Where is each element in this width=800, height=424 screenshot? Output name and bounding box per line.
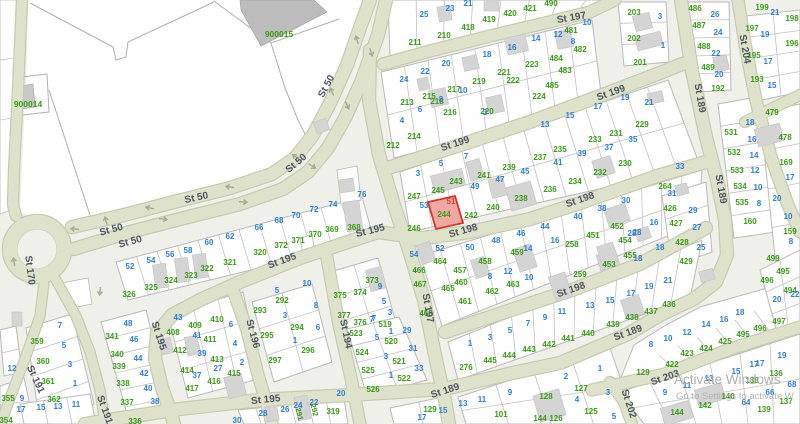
svg-text:18: 18 [746,118,755,127]
svg-text:7: 7 [526,319,531,328]
svg-text:319: 319 [326,407,340,416]
svg-text:144: 144 [670,408,684,417]
svg-text:15: 15 [37,403,46,412]
svg-text:371: 371 [291,236,305,245]
svg-text:15: 15 [566,111,575,120]
svg-text:223: 223 [525,60,539,69]
svg-text:5: 5 [375,333,380,342]
svg-text:375: 375 [333,291,347,300]
svg-text:1: 1 [468,339,473,348]
svg-text:68: 68 [275,216,284,225]
svg-text:22: 22 [712,49,721,58]
svg-text:6: 6 [229,320,234,329]
svg-text:370: 370 [308,230,322,239]
svg-text:44: 44 [134,354,143,363]
svg-text:40: 40 [144,384,153,393]
svg-text:26: 26 [281,405,290,414]
svg-text:497: 497 [772,317,786,326]
svg-text:337: 337 [120,398,134,407]
svg-text:8: 8 [439,95,444,104]
svg-text:246: 246 [407,224,421,233]
svg-text:6: 6 [418,105,423,114]
svg-text:485: 485 [545,81,559,90]
svg-text:17: 17 [418,413,427,422]
svg-text:487: 487 [692,21,706,30]
svg-text:60: 60 [205,238,214,247]
svg-text:466: 466 [412,266,426,275]
svg-text:465: 465 [441,284,455,293]
svg-text:341: 341 [105,332,119,341]
svg-text:10: 10 [664,334,673,343]
svg-text:8: 8 [571,37,576,46]
svg-text:11: 11 [478,395,487,404]
svg-text:12: 12 [554,30,563,39]
svg-text:25: 25 [697,243,706,252]
svg-text:41: 41 [193,331,202,340]
svg-text:13: 13 [459,399,468,408]
svg-text:29: 29 [689,206,698,215]
svg-text:201: 201 [633,58,647,67]
svg-text:376: 376 [353,318,367,327]
svg-text:452: 452 [610,222,624,231]
svg-text:125: 125 [584,407,598,416]
svg-text:3: 3 [483,108,488,117]
svg-text:3: 3 [658,12,663,21]
svg-text:212: 212 [386,141,400,150]
svg-text:51: 51 [447,197,456,206]
svg-text:6: 6 [316,323,321,332]
svg-text:411: 411 [204,335,217,344]
svg-text:9: 9 [663,388,668,397]
svg-text:18: 18 [656,243,665,252]
svg-text:422: 422 [665,360,679,369]
svg-text:436: 436 [662,300,676,309]
svg-text:14: 14 [532,34,541,43]
svg-text:296: 296 [301,346,315,355]
svg-text:126: 126 [549,414,563,423]
svg-text:336: 336 [128,417,142,424]
svg-text:326: 326 [122,290,136,299]
svg-text:16: 16 [508,43,517,52]
svg-text:1: 1 [293,336,298,345]
svg-text:10: 10 [754,183,763,192]
svg-text:216: 216 [443,108,457,117]
svg-text:412: 412 [173,346,187,355]
svg-text:28: 28 [628,229,637,238]
svg-text:30: 30 [622,196,631,205]
svg-text:439: 439 [606,320,620,329]
svg-text:440: 440 [581,329,595,338]
svg-text:534: 534 [733,182,747,191]
svg-text:37: 37 [193,371,202,380]
svg-text:129: 129 [636,368,650,377]
svg-text:359: 359 [30,337,44,346]
svg-text:424: 424 [699,344,713,353]
svg-text:7: 7 [464,152,469,161]
svg-text:461: 461 [458,297,472,306]
svg-text:490: 490 [544,0,558,8]
svg-text:49: 49 [471,182,480,191]
svg-text:16: 16 [551,236,560,245]
svg-text:33: 33 [415,364,424,373]
svg-text:360: 360 [36,357,50,366]
svg-text:259: 259 [573,270,587,279]
svg-text:8: 8 [488,272,493,281]
svg-text:198: 198 [785,14,799,23]
svg-text:70: 70 [292,211,301,220]
svg-text:14: 14 [702,320,711,329]
svg-text:355: 355 [1,394,15,403]
svg-text:410: 410 [210,315,224,324]
svg-text:441: 441 [561,334,575,343]
svg-text:30: 30 [233,416,242,424]
svg-text:532: 532 [727,148,741,157]
svg-text:14: 14 [750,151,759,160]
svg-text:5: 5 [62,341,67,350]
svg-text:11: 11 [558,307,567,316]
svg-text:243: 243 [449,177,463,186]
svg-text:4: 4 [575,395,580,404]
svg-text:8: 8 [757,199,762,208]
svg-text:10: 10 [784,212,793,221]
svg-text:482: 482 [573,45,587,54]
svg-text:20: 20 [442,59,451,68]
svg-text:5: 5 [612,412,617,421]
svg-text:294: 294 [290,323,304,332]
svg-text:17: 17 [786,173,795,182]
svg-text:31: 31 [668,189,677,198]
svg-text:45: 45 [521,167,530,176]
svg-text:489: 489 [701,63,715,72]
svg-text:324: 324 [164,276,178,285]
svg-text:520: 520 [384,337,398,346]
svg-text:20: 20 [337,389,346,398]
svg-text:338: 338 [116,379,130,388]
svg-text:499: 499 [766,254,780,263]
svg-text:196: 196 [785,39,799,48]
svg-text:62: 62 [226,232,235,241]
svg-text:18: 18 [483,50,492,59]
svg-text:524: 524 [355,348,369,357]
svg-text:47: 47 [496,175,505,184]
svg-text:27: 27 [214,364,223,373]
svg-text:17: 17 [764,57,773,66]
svg-text:229: 229 [635,120,649,129]
svg-text:42: 42 [140,369,149,378]
svg-text:20: 20 [773,295,782,304]
svg-text:444: 444 [502,351,516,360]
svg-text:230: 230 [618,159,632,168]
svg-text:21: 21 [464,0,473,8]
svg-text:496: 496 [753,324,767,333]
svg-text:425: 425 [718,337,732,346]
svg-text:56: 56 [166,250,175,259]
svg-text:535: 535 [735,198,749,207]
svg-text:463: 463 [506,280,520,289]
svg-text:438: 438 [625,313,639,322]
svg-text:443: 443 [522,345,536,354]
svg-text:531: 531 [724,128,738,137]
svg-text:66: 66 [255,223,264,232]
svg-text:139: 139 [757,405,771,414]
svg-text:496: 496 [760,276,774,285]
svg-text:29: 29 [403,326,412,335]
svg-text:38: 38 [151,397,160,406]
svg-text:16: 16 [720,315,729,324]
svg-text:54: 54 [147,256,156,265]
svg-text:12: 12 [683,328,692,337]
svg-text:453: 453 [602,260,616,269]
svg-text:40: 40 [574,212,583,221]
svg-text:3: 3 [283,311,288,320]
svg-text:101: 101 [494,410,508,419]
svg-text:495: 495 [776,267,790,276]
svg-text:20: 20 [773,194,782,203]
svg-text:222: 222 [506,76,520,85]
svg-text:39: 39 [198,349,207,358]
svg-text:3: 3 [416,169,421,178]
svg-text:495: 495 [736,330,750,339]
svg-text:458: 458 [478,257,492,266]
svg-text:53: 53 [420,201,429,210]
svg-text:10: 10 [459,86,468,95]
svg-text:525: 525 [361,366,375,375]
svg-text:48: 48 [492,236,501,245]
svg-text:2: 2 [240,358,245,367]
svg-text:237: 237 [533,153,547,162]
svg-text:1: 1 [73,379,78,388]
svg-text:15: 15 [439,406,448,415]
svg-text:325: 325 [144,283,158,292]
svg-text:213: 213 [400,98,414,107]
svg-text:25: 25 [420,10,429,19]
svg-text:31: 31 [409,344,418,353]
svg-text:24: 24 [400,75,409,84]
svg-text:3: 3 [388,308,393,317]
svg-text:24: 24 [714,28,723,37]
svg-text:214: 214 [407,132,421,141]
svg-text:219: 219 [472,77,486,86]
svg-text:22: 22 [791,290,800,299]
svg-text:13: 13 [541,120,550,129]
svg-text:74: 74 [329,200,338,209]
svg-text:417: 417 [185,384,199,393]
svg-text:19: 19 [645,282,654,291]
svg-text:197: 197 [745,24,759,33]
svg-text:245: 245 [431,186,445,195]
svg-text:128: 128 [539,392,553,401]
svg-text:28: 28 [259,409,268,418]
svg-text:320: 320 [253,248,267,257]
svg-text:3: 3 [68,360,73,369]
svg-text:20: 20 [715,70,724,79]
svg-text:39: 39 [578,149,587,158]
svg-text:460: 460 [454,278,468,287]
svg-text:7: 7 [58,321,63,330]
svg-text:467: 467 [413,280,427,289]
svg-text:14: 14 [524,244,533,253]
svg-text:419: 419 [482,15,496,24]
svg-text:12: 12 [504,267,513,276]
svg-text:242: 242 [464,211,478,220]
svg-text:52: 52 [126,262,135,271]
svg-text:50: 50 [466,243,475,252]
svg-text:426: 426 [663,204,677,213]
svg-text:8: 8 [314,301,319,310]
svg-text:17: 17 [756,359,765,368]
svg-text:1: 1 [389,371,394,380]
svg-text:445: 445 [483,356,497,365]
svg-text:5: 5 [439,159,444,168]
svg-text:295: 295 [260,331,274,340]
svg-text:3: 3 [384,352,389,361]
svg-text:231: 231 [609,129,623,138]
svg-text:427: 427 [669,219,683,228]
svg-text:192: 192 [711,84,725,93]
svg-text:16: 16 [748,135,757,144]
svg-text:479: 479 [765,108,779,117]
svg-text:1: 1 [598,364,603,373]
svg-text:437: 437 [644,307,658,316]
svg-text:239: 239 [502,163,516,172]
svg-text:258: 258 [565,240,579,249]
svg-text:5: 5 [275,286,280,295]
svg-text:420: 420 [503,9,517,18]
svg-text:10: 10 [303,279,312,288]
svg-text:415: 415 [227,369,241,378]
svg-text:241: 241 [477,171,491,180]
svg-text:457: 457 [453,266,467,275]
svg-text:234: 234 [568,177,582,186]
svg-text:276: 276 [459,363,473,372]
svg-text:52: 52 [436,244,445,253]
svg-text:169: 169 [779,158,793,167]
svg-text:43: 43 [174,313,183,322]
svg-text:1: 1 [661,41,666,50]
svg-text:297: 297 [268,356,282,365]
svg-text:232: 232 [593,168,607,177]
svg-text:26: 26 [711,10,720,19]
svg-text:464: 464 [433,257,447,266]
svg-text:Activate Windows: Activate Windows [674,372,781,387]
svg-text:5: 5 [382,297,387,306]
svg-text:244: 244 [437,210,451,219]
svg-text:68: 68 [788,380,797,389]
svg-text:233: 233 [588,135,602,144]
svg-text:459: 459 [510,248,524,257]
svg-text:7: 7 [370,315,375,324]
svg-text:462: 462 [485,287,499,296]
svg-text:17: 17 [627,289,636,298]
svg-text:17: 17 [17,405,26,414]
svg-text:421: 421 [523,4,537,13]
svg-text:12: 12 [751,166,760,175]
svg-text:374: 374 [353,288,367,297]
svg-text:442: 442 [542,340,556,349]
svg-text:54: 54 [410,250,419,259]
svg-text:41: 41 [554,158,563,167]
svg-text:322: 322 [200,264,214,273]
svg-text:292: 292 [275,296,289,305]
svg-text:202: 202 [627,34,641,43]
svg-text:13: 13 [54,402,63,411]
svg-text:211: 211 [409,38,422,47]
svg-text:199: 199 [755,3,769,12]
svg-text:247: 247 [407,192,421,201]
svg-text:224: 224 [532,92,546,101]
svg-text:900014: 900014 [14,99,43,109]
svg-text:142: 142 [698,401,712,410]
svg-text:484: 484 [549,54,563,63]
svg-text:Go to Settings to activate W: Go to Settings to activate W [676,391,794,402]
svg-text:8: 8 [789,237,794,246]
svg-text:15: 15 [606,296,615,305]
svg-text:160: 160 [743,217,757,226]
svg-text:37: 37 [605,143,614,152]
svg-text:4: 4 [233,339,238,348]
svg-text:9: 9 [508,388,513,397]
svg-text:27: 27 [693,223,702,232]
svg-text:127: 127 [574,384,588,393]
svg-text:44: 44 [541,222,550,231]
svg-text:423: 423 [680,349,694,358]
svg-text:21: 21 [771,8,780,17]
svg-text:5: 5 [508,326,513,335]
svg-text:144: 144 [533,414,547,423]
svg-text:2: 2 [564,372,569,381]
svg-text:1: 1 [389,327,394,336]
svg-text:35: 35 [629,135,638,144]
svg-text:8: 8 [649,340,654,349]
svg-text:3: 3 [488,333,493,342]
svg-text:9: 9 [20,394,25,403]
svg-text:321: 321 [223,258,237,267]
svg-text:48: 48 [124,319,133,328]
svg-text:9: 9 [543,313,548,322]
svg-text:235: 235 [553,145,567,154]
svg-text:293: 293 [253,306,267,315]
svg-text:46: 46 [517,229,526,238]
svg-text:372: 372 [274,241,288,250]
svg-text:238: 238 [514,194,528,203]
svg-text:900015: 900015 [265,29,294,39]
svg-text:323: 323 [184,271,198,280]
svg-text:339: 339 [112,362,126,371]
svg-text:369: 369 [325,225,339,234]
svg-text:483: 483 [558,66,572,75]
svg-text:23: 23 [446,4,455,13]
svg-text:21: 21 [664,276,673,285]
svg-text:18: 18 [736,308,745,317]
svg-text:15: 15 [768,81,777,90]
svg-text:22: 22 [421,67,430,76]
svg-text:354: 354 [0,416,13,424]
svg-text:18: 18 [634,254,643,263]
svg-text:58: 58 [184,246,193,255]
svg-text:240: 240 [486,203,500,212]
svg-text:76: 76 [358,190,367,199]
svg-text:16: 16 [650,218,659,227]
svg-text:522: 522 [397,374,411,383]
svg-text:418: 418 [461,23,475,32]
svg-text:340: 340 [110,350,124,359]
svg-text:3: 3 [606,388,611,397]
svg-text:11: 11 [72,400,81,409]
svg-text:13: 13 [586,301,595,310]
svg-text:521: 521 [392,357,406,366]
svg-text:21: 21 [645,98,654,107]
svg-text:10: 10 [525,273,534,282]
